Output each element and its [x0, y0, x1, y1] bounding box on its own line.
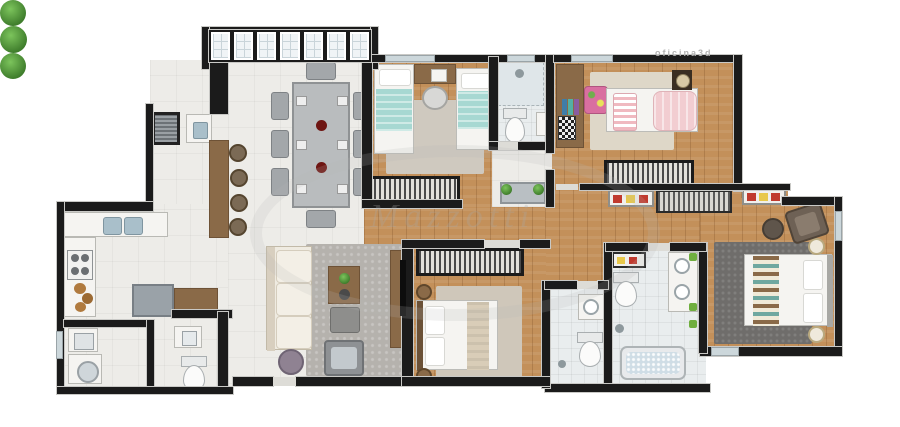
desk-chair [422, 86, 448, 110]
blanket-icon [458, 91, 492, 129]
accent-chair [584, 86, 608, 114]
wall-segment [580, 184, 790, 190]
headboard-icon [827, 255, 833, 327]
bed-runner-icon [753, 256, 779, 326]
wall-segment [362, 55, 372, 207]
burner-icon [81, 267, 89, 275]
burner-icon [71, 254, 79, 262]
wall-segment [598, 281, 608, 289]
wall-segment [542, 281, 550, 388]
shoe-box-icon [613, 195, 622, 203]
toilet-bowl-icon [615, 281, 637, 307]
burner-icon [81, 254, 89, 262]
bar-stool [229, 218, 247, 236]
sink-basin-icon [103, 217, 122, 235]
bedroom-double-door [484, 240, 520, 248]
wall-segment [146, 104, 153, 210]
dining-chair [271, 92, 289, 120]
shoe-box-icon [626, 195, 635, 203]
plant-icon [689, 253, 697, 261]
bedroom-single-door [556, 184, 578, 190]
bathroom-suite-door [577, 281, 598, 289]
barbecue-grill [152, 112, 180, 145]
bread-basket-icon [75, 302, 86, 312]
shoe-box-icon [747, 193, 756, 201]
armchair-cushion-icon [331, 347, 357, 369]
plant-icon [0, 26, 27, 53]
window-pane-icon [211, 32, 230, 60]
plant-icon [689, 303, 697, 311]
gourmet-sink [186, 114, 212, 143]
shoe-shelf [742, 188, 786, 205]
bathtub-water-icon [626, 352, 680, 374]
wall-segment [362, 200, 462, 208]
glass-window-band [209, 30, 371, 62]
armchair-cushion-icon [794, 211, 821, 237]
wall-segment [371, 27, 378, 69]
place-setting-icon [296, 96, 307, 106]
table-bowl-icon [339, 289, 350, 300]
double-bed [416, 300, 498, 370]
dining-table [292, 82, 350, 208]
wall-segment [64, 320, 148, 327]
nightstand [808, 326, 825, 343]
table-plant-icon [339, 273, 350, 284]
wall-segment [402, 377, 550, 386]
wall-segment [147, 320, 154, 392]
bar-stool [230, 169, 248, 187]
sofa-cushion-icon [276, 250, 312, 283]
window-pane-icon [350, 32, 369, 60]
decor-item-icon [629, 257, 637, 264]
wall-segment [670, 243, 706, 251]
place-setting-icon [337, 184, 348, 194]
shower-head-icon [558, 360, 566, 368]
pillow-icon [379, 69, 411, 86]
bathroom-social-window [508, 56, 534, 61]
place-setting-icon [337, 96, 348, 106]
speaker-cone-icon [676, 74, 690, 88]
washing-machine [68, 354, 102, 384]
pillow-icon [425, 306, 445, 335]
place-setting-icon [296, 184, 307, 194]
decor-item-icon [617, 257, 625, 264]
sofa-cushion-icon [276, 316, 312, 349]
clothes-rack [656, 190, 732, 213]
wall-segment [606, 243, 648, 251]
wall-segment [218, 312, 228, 390]
plant-icon [533, 184, 544, 195]
bar-counter [209, 140, 229, 238]
wall-segment [202, 27, 209, 69]
wall-segment [489, 57, 498, 150]
kitchen-sink-counter [62, 212, 168, 237]
book-icon [562, 99, 567, 115]
window-pane-icon [327, 32, 346, 60]
master-bed [744, 254, 832, 326]
toilet-bowl-icon [505, 117, 525, 143]
sofa-back-icon [267, 247, 275, 351]
window-pane-icon [257, 32, 276, 60]
shower-head-icon [615, 324, 624, 333]
study-desk [414, 64, 456, 84]
wall-segment [296, 377, 412, 386]
wall-segment [233, 377, 273, 386]
nightstand [808, 238, 825, 255]
window-pane-icon [304, 32, 323, 60]
wall-segment [734, 55, 742, 191]
plant-icon [689, 320, 697, 328]
dining-chair [306, 210, 336, 228]
work-cabinet [132, 284, 174, 317]
wall-segment [520, 240, 550, 248]
blanket-icon [653, 91, 697, 131]
round-sink [583, 299, 599, 315]
pillow-icon [613, 93, 637, 131]
wall-segment [57, 387, 233, 394]
service-toilet [180, 356, 206, 390]
place-setting-icon [296, 140, 307, 150]
book-icon [568, 99, 573, 115]
master-ottoman [762, 218, 784, 240]
pouf [278, 349, 304, 375]
plant-icon [0, 53, 26, 79]
shower-head-icon [515, 69, 524, 78]
bar-stool [230, 194, 248, 212]
plant-icon [0, 0, 26, 26]
dining-chair [271, 130, 289, 158]
master-toilet [612, 272, 638, 306]
ottoman [330, 307, 360, 333]
pillow-icon [425, 337, 445, 366]
headboard-icon [417, 301, 423, 371]
service-sink [174, 326, 202, 348]
nightstand [416, 284, 432, 300]
tv-screen [400, 260, 406, 316]
place-setting-icon [337, 140, 348, 150]
bedroom-twin-window [386, 56, 434, 61]
coffee-table [328, 266, 360, 304]
plant-icon [501, 184, 512, 195]
work-desk [174, 288, 218, 312]
shoe-box-icon [639, 195, 648, 203]
wall-segment [545, 281, 577, 289]
bread-basket-icon [74, 283, 86, 294]
decor-bowl-icon [316, 162, 327, 173]
speaker [672, 70, 692, 90]
laundry-tank [68, 328, 98, 352]
sofa [266, 246, 312, 350]
twin-bed-left [374, 64, 414, 154]
sink-basin-icon [182, 331, 197, 346]
window-pane-icon [280, 32, 299, 60]
master-bathroom-door [648, 243, 670, 251]
studio-credit: oficina3d [655, 48, 713, 58]
armchair [324, 340, 364, 376]
master-window-right [836, 212, 841, 240]
bar-stool [229, 144, 247, 162]
entry-door [273, 377, 296, 386]
decor-shelf [612, 252, 646, 268]
decor-bowl-icon [316, 120, 327, 131]
service-window [57, 332, 62, 358]
toilet-bowl-icon [579, 341, 601, 367]
round-sink [674, 284, 690, 300]
blanket-icon [376, 89, 412, 131]
floor-plan: Mazzotti oficina3d [0, 0, 900, 427]
sofa-cushion-icon [276, 283, 312, 316]
bathroom-door [498, 142, 518, 150]
shoe-box-icon [759, 193, 768, 201]
checker-pouf [558, 116, 576, 140]
shower-area [498, 62, 544, 106]
window-pane-icon [234, 32, 253, 60]
double-wardrobe [416, 248, 524, 276]
shoe-shelf [608, 190, 654, 207]
bedroom-single-window [572, 56, 612, 61]
sink-basin-icon [124, 217, 143, 235]
pillow-icon [803, 293, 823, 323]
washer-door-icon [77, 361, 99, 383]
wall-segment [604, 243, 612, 392]
wall-segment [782, 197, 842, 205]
single-bed [606, 88, 698, 132]
shoe-box-icon [771, 193, 780, 201]
wall-segment [545, 384, 710, 392]
wall-segment [57, 202, 64, 394]
wall-segment [546, 55, 554, 153]
wall-segment [699, 243, 707, 353]
wall-segment [546, 170, 554, 207]
cooktop [67, 250, 93, 280]
pillow-icon [803, 260, 823, 290]
bed-runner-icon [467, 302, 489, 370]
book-icon [574, 99, 579, 115]
laptop-icon [431, 69, 447, 82]
dining-chair [271, 168, 289, 196]
sink-basin-icon [193, 122, 208, 139]
burner-icon [71, 267, 79, 275]
wall-segment [402, 240, 484, 248]
toilet [502, 108, 526, 142]
twin-wardrobe [366, 176, 460, 203]
master-window-bottom [712, 348, 738, 355]
dining-chair [306, 62, 336, 80]
wall-segment [57, 202, 153, 211]
wall-segment [210, 62, 228, 114]
pillow-icon [461, 73, 491, 89]
round-sink [674, 258, 690, 274]
suite-toilet [576, 332, 602, 366]
tank-basin-icon [74, 333, 94, 350]
bathtub [620, 346, 686, 380]
